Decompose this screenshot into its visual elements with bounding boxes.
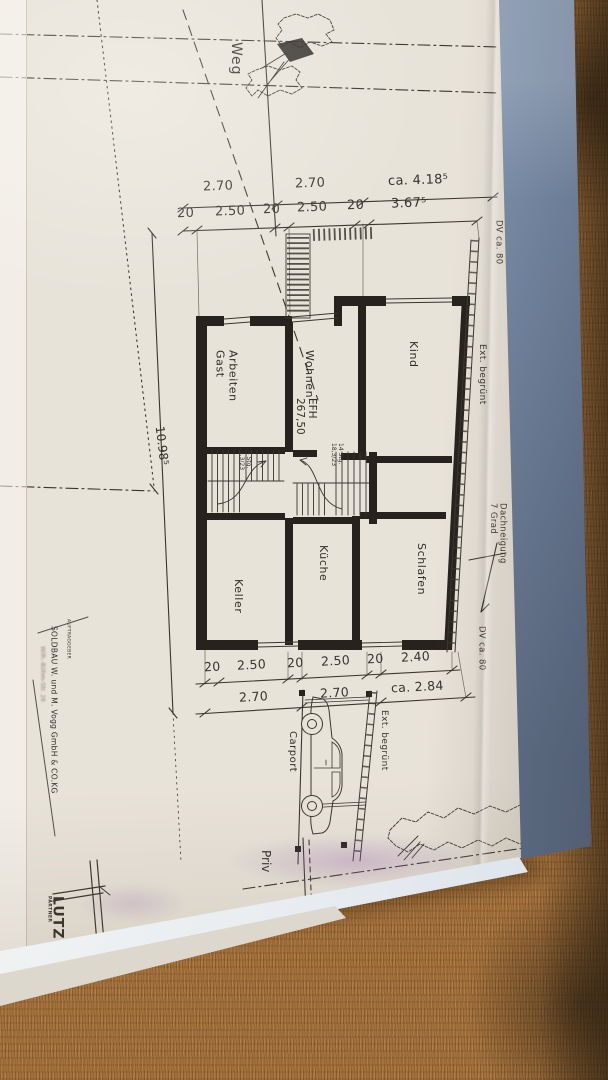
purple-smudge-on-fold xyxy=(58,876,208,930)
photo-of-floor-plan: Weg 2.70 2.70 ca. 4.18⁵ 20 2.50 20 2.50 … xyxy=(0,0,608,1080)
